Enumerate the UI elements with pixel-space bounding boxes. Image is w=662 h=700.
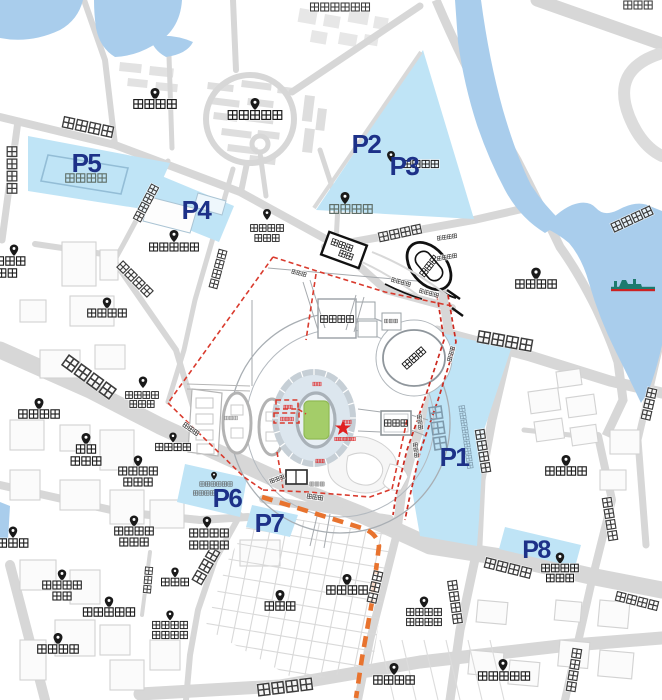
svg-text:P7: P7 — [255, 508, 285, 538]
svg-text:P2: P2 — [352, 129, 382, 159]
svg-text:P4: P4 — [182, 195, 213, 225]
svg-text:P5: P5 — [72, 148, 102, 178]
svg-text:P1: P1 — [440, 442, 470, 472]
svg-text:P8: P8 — [522, 536, 551, 564]
svg-text:P3: P3 — [390, 151, 420, 181]
svg-text:P6: P6 — [213, 483, 243, 513]
